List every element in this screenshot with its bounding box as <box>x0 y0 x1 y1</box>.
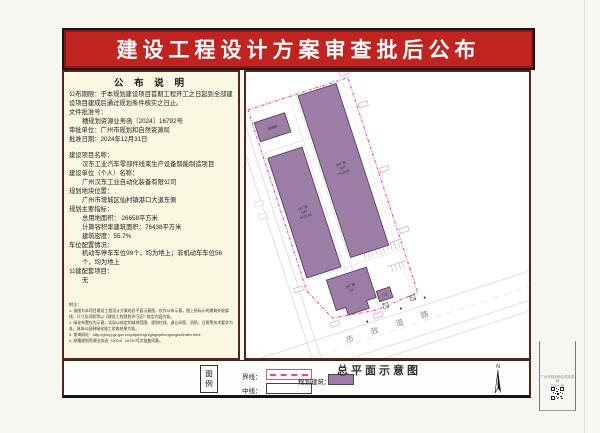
notice-line: 总用地面积： 26658平方米 <box>69 215 233 224</box>
site-plan-drawing: 1#厂房 （5F） H=23.95 2#厂房 （5F） H=23.95 3#厂房… <box>246 72 529 358</box>
qr-code-icon <box>551 387 564 400</box>
note-item: 4. 经穗规划资源业务函〔2024〕16792号文批复同意。 <box>69 338 234 343</box>
notice-page: 建设工程设计方案审查批后公布 公 布 说 明 公布期限：于本规划建设项目首期工程… <box>0 0 600 433</box>
notice-lines: 公布期限：于本规划建设项目首期工程开工之日起到全部建设项目建成后通过规划条件核实… <box>64 91 238 286</box>
legend-band: 图例 界线： 中线： 规划建筑： 总平面示意图 N <box>62 360 531 398</box>
notice-line: 批准日期：2024年12月31日 <box>69 136 233 145</box>
note-item: 2. 绿化布置仅为示意，实际以核定的绿地范围、规划红线、退让间距、消防、日照等技… <box>69 320 234 331</box>
north-label: N <box>496 364 500 370</box>
notice-line: 广州市增城区仙村镇港口大道东侧 <box>69 197 233 206</box>
banner: 建设工程设计方案审查批后公布 <box>62 28 535 70</box>
notice-line: 规划主要指标： <box>69 206 233 215</box>
paper-edge <box>584 0 585 433</box>
legend-item-boundary-label: 界线： <box>242 371 262 381</box>
notice-header: 公 布 说 明 <box>64 75 238 89</box>
notice-line: 建设项目名称： <box>69 152 233 161</box>
buildings <box>251 83 406 324</box>
legend-box-label: 图例 <box>204 370 215 389</box>
notice-line: 无 <box>69 277 233 286</box>
north-arrow: N <box>489 362 507 402</box>
roadside-labels <box>254 200 268 220</box>
notice-line: 规划地块位置： <box>69 188 233 197</box>
notice-line: 广州汉东工业自动化装备有限公司 <box>69 179 233 188</box>
notes-label: 附注： <box>69 302 234 307</box>
notice-line: 建设单位（个人）名称： <box>69 170 233 179</box>
page-title: 建设工程设计方案审查批后公布 <box>117 34 481 64</box>
north-needle-right <box>498 370 501 393</box>
site-plan-panel: 1#厂房 （5F） H=23.95 2#厂房 （5F） H=23.95 3#厂房… <box>244 70 531 360</box>
notice-line: 机动车停车车位99个，均为地上；非机动车车位56个，均为地上 <box>69 250 233 268</box>
notice-line: 文件批准号： <box>69 109 233 118</box>
notice-panel: 公 布 说 明 公布期限：于本规划建设项目首期工程开工之日起到全部建设项目建成后… <box>62 70 240 360</box>
side-strip-line1: 广州市规划和自然资源局 <box>540 375 575 384</box>
note-item: 3. 查询网址：http://ghzyj.gz.gov.cn/ywpd/cxgh… <box>69 332 234 337</box>
notice-line: 公建配套项目： <box>69 268 233 277</box>
notice-line: 穗规划资源业务函〔2024〕16792号 <box>69 118 233 127</box>
notice-line: 审批单位：广州市规划和自然资源局 <box>69 127 233 136</box>
notice-notes: 1. 该图为本项目建设工程设计方案的总平面示意图，仅作公布示意。图上所标示的建筑… <box>69 308 234 343</box>
building-workshop-3 <box>326 267 378 318</box>
north-needle-left <box>495 370 498 393</box>
notice-line: 汉东工业汽车零部件线束生产设备智能制造项目 <box>69 161 233 170</box>
notice-line: 计算容积率建筑面积：76438平方米 <box>69 224 233 233</box>
legend-item-centerline-label: 中线： <box>242 385 262 395</box>
notice-notes-block: 附注： 1. 该图为本项目建设工程设计方案的总平面示意图，仅作公布示意。图上所标… <box>69 302 234 345</box>
plan-title: 总平面示意图 <box>264 362 494 378</box>
notice-line: 公布期限：于本规划建设项目首期工程开工之日起到全部建设项目建成后通过规划条件核实… <box>69 91 233 109</box>
legend-title-box: 图例 <box>200 365 218 393</box>
notice-line: 建筑密度：55.7% <box>69 233 233 242</box>
side-strip: 广州市规划和自然资源局 批后公布 <box>539 341 576 411</box>
note-item: 1. 该图为本项目建设工程设计方案的总平面示意图，仅作公布示意。图上所标示的建筑… <box>69 308 234 319</box>
